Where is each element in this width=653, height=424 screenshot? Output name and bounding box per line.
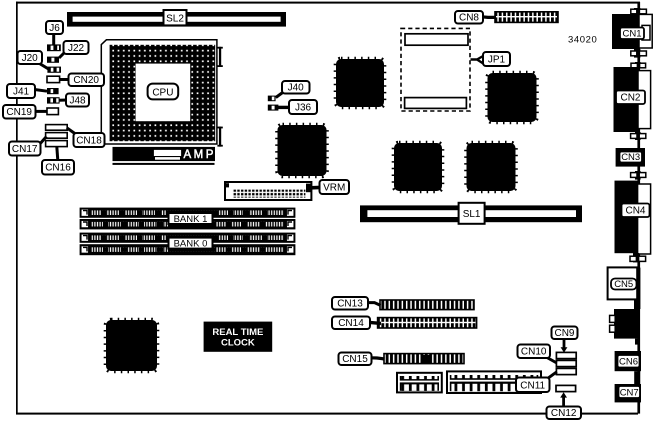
svg-text:J6: J6 (49, 23, 60, 34)
svg-text:J20: J20 (22, 53, 39, 64)
svg-text:CN2: CN2 (620, 93, 640, 104)
svg-text:CN12: CN12 (551, 408, 577, 419)
svg-text:CN1: CN1 (622, 28, 641, 39)
svg-text:CN15: CN15 (342, 354, 368, 365)
svg-text:BANK 0: BANK 0 (174, 239, 208, 250)
svg-text:J40: J40 (288, 83, 305, 94)
svg-text:VRM: VRM (323, 183, 345, 194)
svg-text:CN18: CN18 (76, 136, 102, 147)
svg-text:AMP: AMP (184, 149, 216, 161)
svg-text:CN20: CN20 (73, 75, 99, 86)
svg-text:SL2: SL2 (166, 13, 184, 24)
svg-text:CPU: CPU (152, 87, 173, 98)
svg-text:CN13: CN13 (337, 299, 363, 310)
svg-text:CN4: CN4 (625, 206, 645, 217)
svg-text:CN19: CN19 (6, 107, 32, 118)
svg-text:J36: J36 (295, 103, 312, 114)
svg-text:CN5: CN5 (614, 279, 633, 290)
svg-text:BANK 1: BANK 1 (174, 214, 208, 225)
svg-text:REAL TIME: REAL TIME (212, 327, 263, 338)
svg-text:CN16: CN16 (45, 163, 71, 174)
svg-text:CN7: CN7 (620, 387, 639, 398)
svg-text:CN11: CN11 (520, 380, 545, 391)
svg-text:CLOCK: CLOCK (221, 338, 255, 349)
svg-text:CN14: CN14 (338, 318, 364, 329)
svg-text:CN17: CN17 (12, 144, 38, 155)
svg-text:CN6: CN6 (619, 357, 638, 368)
svg-text:CN3: CN3 (621, 152, 640, 163)
svg-text:JP1: JP1 (488, 55, 506, 66)
svg-text:CN8: CN8 (459, 13, 479, 24)
svg-text:CN9: CN9 (554, 328, 574, 339)
svg-text:J41: J41 (13, 87, 30, 98)
svg-text:34020: 34020 (568, 35, 597, 46)
svg-text:J48: J48 (69, 96, 86, 107)
svg-text:J22: J22 (68, 43, 85, 54)
svg-text:SL1: SL1 (463, 209, 481, 220)
svg-text:CN10: CN10 (521, 347, 547, 358)
